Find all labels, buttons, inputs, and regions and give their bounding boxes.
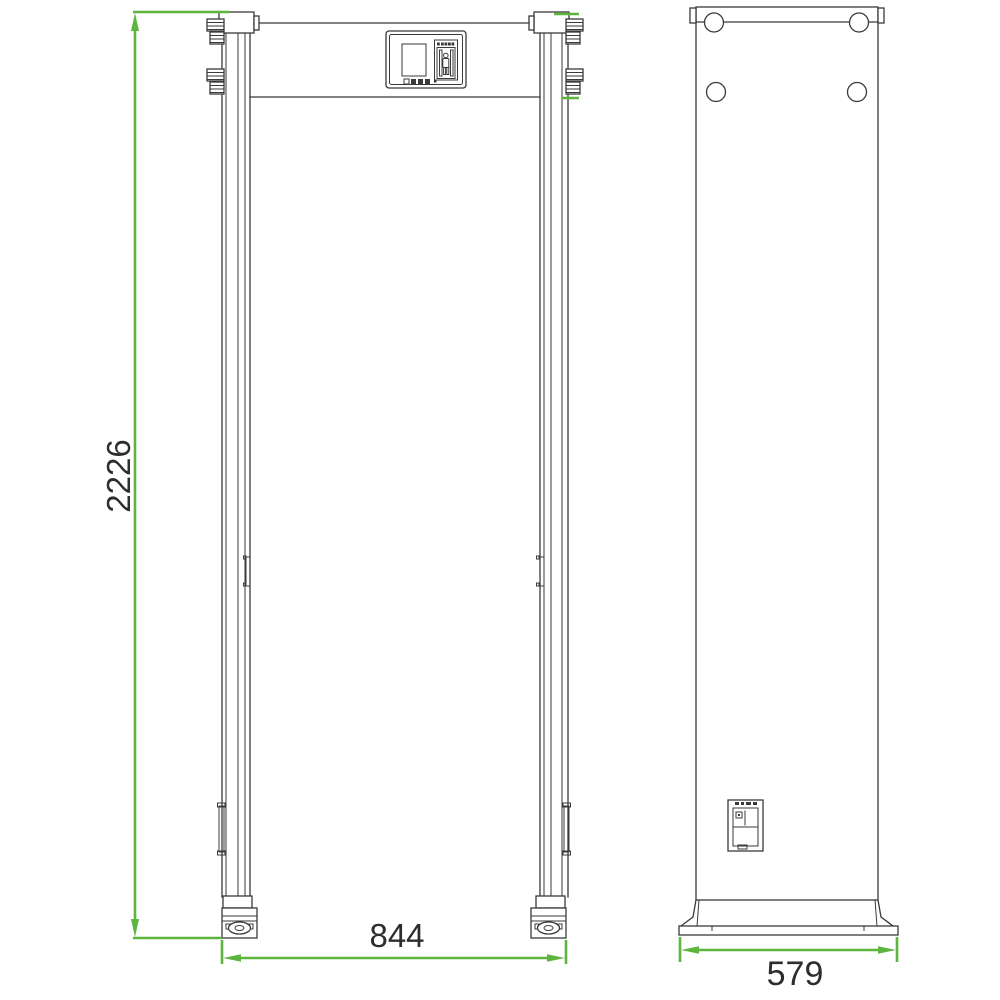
caster-wheel [538, 922, 560, 934]
bolt-hole [850, 13, 869, 32]
depth-dimension: 579 [680, 937, 897, 993]
bolt-hole [848, 83, 867, 102]
width-dimension-label: 844 [369, 917, 424, 954]
depth-dimension-label: 579 [767, 955, 824, 993]
caster-wheel [229, 922, 251, 934]
metal-detector-dimension-drawing: 2226 844 [0, 0, 1000, 1000]
hinge-bracket-right-top [566, 19, 583, 44]
arrowhead-right [878, 946, 896, 954]
inner-sensor-bar-right [537, 556, 545, 586]
technical-drawing-page: 2226 844 [0, 0, 1000, 1000]
right-column [529, 12, 569, 897]
control-panel [386, 31, 466, 88]
arrowhead-right [547, 954, 565, 962]
hinge-bracket-left-top [207, 19, 224, 44]
right-foot [531, 896, 566, 938]
left-foot [222, 896, 257, 938]
arrowhead-left [223, 954, 241, 962]
base-plate [679, 900, 898, 935]
junction-box [728, 800, 763, 851]
width-dimension: 844 [222, 917, 566, 964]
inner-sensor-bar-left [244, 556, 251, 586]
bolt-hole [705, 13, 724, 32]
outer-bar-left [218, 803, 226, 855]
outer-bar-right [563, 803, 571, 855]
bolt-holes [705, 13, 869, 102]
side-view: 579 [679, 7, 898, 993]
height-dimension: 2226 [100, 12, 230, 938]
hinge-bracket-left-lower [207, 69, 224, 94]
arrowhead-down [131, 919, 139, 937]
arrowhead-up [131, 13, 139, 31]
height-dimension-label: 2226 [100, 439, 137, 512]
arrowhead-left [681, 946, 699, 954]
left-column [219, 12, 259, 897]
bolt-hole [707, 83, 726, 102]
side-body [690, 7, 884, 900]
front-view: 2226 844 [100, 12, 583, 964]
hinge-bracket-right-lower [566, 69, 583, 94]
